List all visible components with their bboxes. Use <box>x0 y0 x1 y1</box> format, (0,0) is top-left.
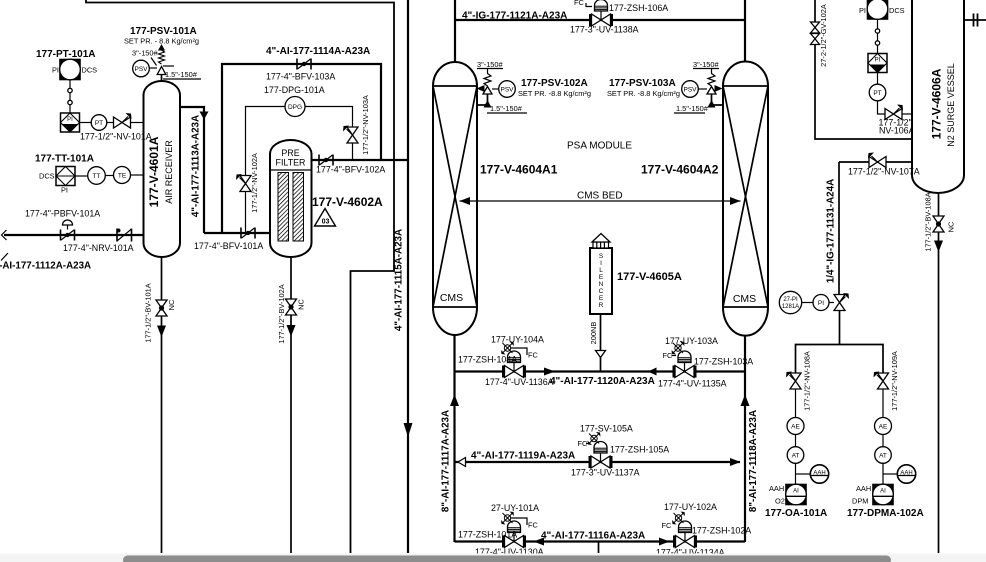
svg-text:177-V-4606A: 177-V-4606A <box>930 68 944 139</box>
svg-text:SET PR. -8.8 Kg/cm²g: SET PR. -8.8 Kg/cm²g <box>518 89 591 98</box>
svg-text:177-4"-UV-1135A: 177-4"-UV-1135A <box>658 379 727 389</box>
svg-text:PI: PI <box>67 117 73 123</box>
svg-text:FC: FC <box>574 0 585 7</box>
svg-text:AI: AI <box>793 489 799 495</box>
svg-text:177-TT-101A: 177-TT-101A <box>35 154 94 165</box>
svg-text:AAH: AAH <box>900 471 912 477</box>
svg-text:DCS: DCS <box>39 172 55 181</box>
svg-text:177-1/2"-BV-108A: 177-1/2"-BV-108A <box>924 192 933 251</box>
svg-text:177-V-4602A: 177-V-4602A <box>312 195 383 209</box>
svg-text:SET PR. -8.8 Kg/cm²g: SET PR. -8.8 Kg/cm²g <box>607 89 680 98</box>
svg-text:27-UY-101A: 27-UY-101A <box>491 503 539 513</box>
svg-text:1.5"-150#: 1.5"-150# <box>676 104 709 113</box>
svg-text:177-ZSH-102A: 177-ZSH-102A <box>692 526 751 536</box>
svg-text:177-SV-105A: 177-SV-105A <box>580 424 633 434</box>
svg-text:4"-AI-177-1113A-A23A: 4"-AI-177-1113A-A23A <box>191 115 202 217</box>
svg-text:177-1/2"-BV-102A: 177-1/2"-BV-102A <box>277 284 286 343</box>
svg-text:AE: AE <box>879 424 888 431</box>
svg-text:NC: NC <box>947 221 956 232</box>
svg-text:AAH: AAH <box>856 484 871 493</box>
svg-text:PT: PT <box>95 120 103 127</box>
svg-text:PSV: PSV <box>500 87 514 94</box>
svg-text:4"-AI-177-1119A-A23A: 4"-AI-177-1119A-A23A <box>471 451 575 462</box>
svg-text:177-1/2"-NV-109A: 177-1/2"-NV-109A <box>890 351 899 411</box>
svg-text:AT: AT <box>792 453 800 460</box>
svg-text:PSV: PSV <box>134 66 148 73</box>
svg-text:FC: FC <box>663 351 674 360</box>
svg-text:DPG: DPG <box>288 104 302 111</box>
svg-text:177-4"-BFV-103A: 177-4"-BFV-103A <box>266 72 335 82</box>
svg-text:177-ZSH-101A: 177-ZSH-101A <box>458 530 517 540</box>
svg-text:1.5"-150#: 1.5"-150# <box>490 104 523 113</box>
svg-text:DCS: DCS <box>82 66 98 75</box>
svg-text:4"-IG-177-1121A-A23A: 4"-IG-177-1121A-A23A <box>462 11 567 22</box>
svg-text:1281A: 1281A <box>782 304 799 310</box>
svg-text:AT: AT <box>879 453 887 460</box>
svg-text:177-4"-BFV-101A: 177-4"-BFV-101A <box>194 241 263 251</box>
svg-text:AIR RECEIVER: AIR RECEIVER <box>164 140 174 204</box>
svg-text:O2: O2 <box>775 497 785 506</box>
svg-text:177-V-4604A2: 177-V-4604A2 <box>641 163 719 177</box>
svg-text:CMS: CMS <box>733 293 756 305</box>
svg-text:177-1/2"-NV-103A: 177-1/2"-NV-103A <box>361 95 370 155</box>
svg-text:177-1/2"-NV-101A: 177-1/2"-NV-101A <box>80 132 152 142</box>
svg-text:177-4"-BFV-102A: 177-4"-BFV-102A <box>316 165 385 175</box>
svg-text:27-PI: 27-PI <box>783 297 798 303</box>
svg-text:PI: PI <box>859 6 866 15</box>
svg-text:PI: PI <box>52 66 59 75</box>
svg-text:177-V-4605A: 177-V-4605A <box>617 271 682 283</box>
svg-text:PT: PT <box>873 90 881 97</box>
svg-text:177-1/2"-NV-102A: 177-1/2"-NV-102A <box>250 153 259 213</box>
svg-text:TT: TT <box>93 173 101 180</box>
svg-text:CMS BED: CMS BED <box>577 191 623 202</box>
svg-text:FC: FC <box>662 521 673 530</box>
svg-text:AI: AI <box>880 489 886 495</box>
svg-text:DCS: DCS <box>889 6 905 15</box>
svg-text:4"-AI-177-1116A-A23A: 4"-AI-177-1116A-A23A <box>541 531 645 542</box>
svg-text:3"-150#: 3"-150# <box>477 60 504 69</box>
svg-text:FC: FC <box>528 521 539 530</box>
svg-text:177-UY-103A: 177-UY-103A <box>665 336 718 346</box>
svg-text:177-3"-UV-1138A: 177-3"-UV-1138A <box>570 25 639 35</box>
svg-text:177-ZSH-105A: 177-ZSH-105A <box>610 445 669 455</box>
svg-text:TE: TE <box>118 173 127 180</box>
svg-text:FILTER: FILTER <box>276 158 306 168</box>
svg-text:177-PSV-101A: 177-PSV-101A <box>130 26 197 37</box>
svg-text:177-PT-101A: 177-PT-101A <box>36 49 95 60</box>
svg-text:177-ZSH-106A: 177-ZSH-106A <box>609 3 668 13</box>
svg-text:CMS: CMS <box>440 292 463 304</box>
svg-text:177-PSV-102A: 177-PSV-102A <box>521 78 588 89</box>
svg-text:PI: PI <box>61 186 68 195</box>
svg-text:AAH: AAH <box>813 471 825 477</box>
svg-text:3"-150#: 3"-150# <box>132 49 159 58</box>
svg-text:177-DPG-101A: 177-DPG-101A <box>264 85 325 95</box>
svg-text:177-ZSH-104A: 177-ZSH-104A <box>458 355 517 365</box>
svg-text:177-DPMA-102A: 177-DPMA-102A <box>847 508 924 519</box>
svg-text:177-OA-101A: 177-OA-101A <box>765 508 827 519</box>
svg-text:AE: AE <box>791 424 800 431</box>
svg-text:N2 SURGE VESSEL: N2 SURGE VESSEL <box>946 63 956 147</box>
svg-text:NC: NC <box>297 299 306 310</box>
svg-text:4"-AI-177-1115A-A23A: 4"-AI-177-1115A-A23A <box>394 229 405 331</box>
svg-text:PRE: PRE <box>281 148 299 158</box>
svg-text:200NB: 200NB <box>589 322 598 345</box>
svg-text:AAH: AAH <box>769 484 784 493</box>
svg-text:1/4"-IG-177-1131-A24A: 1/4"-IG-177-1131-A24A <box>826 179 837 283</box>
svg-text:PSV: PSV <box>683 87 697 94</box>
svg-text:PSA MODULE: PSA MODULE <box>567 141 632 152</box>
svg-text:177-4"-UV-1136A: 177-4"-UV-1136A <box>485 377 554 387</box>
svg-text:PI: PI <box>818 300 824 307</box>
svg-text:8"-AI-177-1117A-A23A: 8"-AI-177-1117A-A23A <box>441 410 452 512</box>
svg-text:4"-AI-177-1120A-A23A: 4"-AI-177-1120A-A23A <box>550 376 655 387</box>
svg-text:8"-AI-177-1118A-A23A: 8"-AI-177-1118A-A23A <box>748 410 759 512</box>
svg-text:177-V-4604A1: 177-V-4604A1 <box>480 163 558 177</box>
svg-text:177-UY-104A: 177-UY-104A <box>491 335 544 345</box>
svg-text:1.5"-150#: 1.5"-150# <box>165 70 198 79</box>
svg-text:4"-AI-177-1114A-A23A: 4"-AI-177-1114A-A23A <box>266 46 370 57</box>
svg-text:177-3"-UV-1137A: 177-3"-UV-1137A <box>571 468 640 478</box>
svg-text:177-4"-NRV-101A: 177-4"-NRV-101A <box>63 243 134 253</box>
svg-text:177-V-4601A: 177-V-4601A <box>147 136 161 207</box>
svg-text:177-PSV-103A: 177-PSV-103A <box>609 78 676 89</box>
svg-text:177-1/2"-NV-108A: 177-1/2"-NV-108A <box>803 351 812 411</box>
svg-text:177-ZSH-103A: 177-ZSH-103A <box>694 357 753 367</box>
svg-text:DPM: DPM <box>852 497 868 506</box>
svg-text:03: 03 <box>322 219 330 226</box>
svg-text:177-UY-102A: 177-UY-102A <box>664 502 717 512</box>
svg-text:177-1/2"-NV-107A: 177-1/2"-NV-107A <box>848 167 920 177</box>
svg-text:FC: FC <box>528 351 539 360</box>
svg-text:3"-150#: 3"-150# <box>693 60 720 69</box>
svg-text:NC: NC <box>167 299 176 310</box>
svg-text:177-1/2"-BV-101A: 177-1/2"-BV-101A <box>144 283 153 342</box>
svg-text:4"-AI-177-1112A-A23A: 4"-AI-177-1112A-A23A <box>0 261 91 272</box>
svg-text:NV-106A: NV-106A <box>879 126 915 136</box>
svg-text:PI: PI <box>875 58 881 64</box>
svg-text:177-4"-PBFV-101A: 177-4"-PBFV-101A <box>25 209 100 219</box>
svg-text:27-2-1/2"-GV-102A: 27-2-1/2"-GV-102A <box>819 4 828 67</box>
